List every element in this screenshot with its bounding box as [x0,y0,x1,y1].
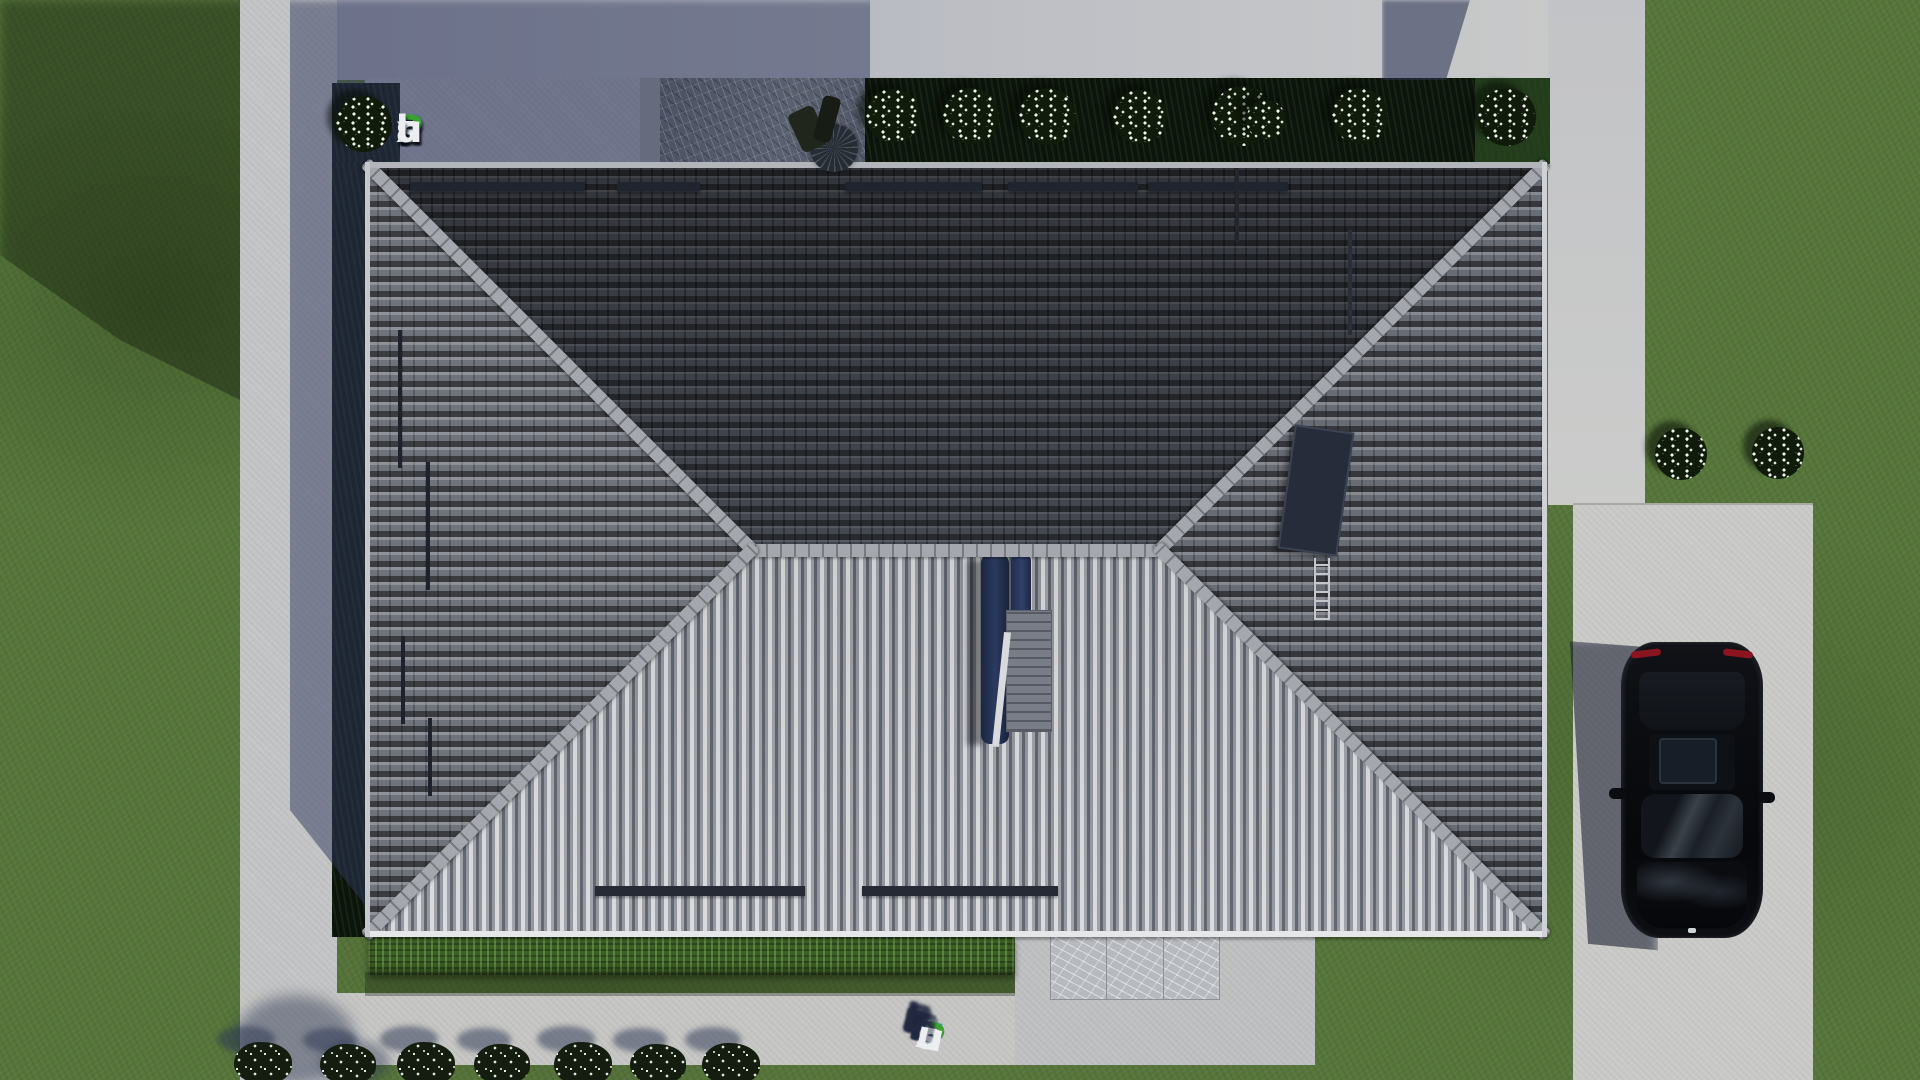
border-plant [630,1044,686,1080]
roof-vent-pipe [1235,164,1239,242]
left-border-bed [332,162,365,937]
car-mirror-right [1758,792,1775,803]
roof-guard-bar [1008,182,1138,191]
black-car [1621,642,1763,938]
marble-patio [1050,935,1220,1000]
flower-bush [1752,427,1804,479]
right-walkway [1548,0,1645,505]
roof-guard-bar [862,886,1058,896]
roof-hatch-box [1006,610,1052,732]
patio-seam [1106,936,1107,999]
roof-pipe [428,718,432,796]
hip-roof [365,162,1547,937]
flower-bush [1478,88,1536,146]
flower-bush [1246,100,1286,140]
flower-bush [336,96,392,152]
roof-guard-bar [617,182,700,191]
roof-pipe [398,330,402,468]
ridge-cap [752,544,1160,557]
car-hood [1637,862,1747,928]
flower-bush [1019,88,1076,145]
border-plant [702,1043,760,1080]
flower-bush [866,89,920,143]
car-mirror-left [1609,788,1626,799]
car-front-badge [1688,928,1696,933]
hedge-grass-strip [365,972,1015,996]
border-plant [397,1042,455,1080]
roof-guard-bar [845,182,982,191]
roof-ladder [1314,558,1330,620]
car-rear-window [1639,672,1745,730]
aerial-render-scene: FixPlans.ru FixPlans.ru FixPlans.ru [0,0,1920,1080]
flower-bush [1113,90,1167,144]
border-plant [474,1044,530,1080]
roof-guard-bar [410,182,585,191]
left-walkway [240,0,337,1080]
roof-pipe [426,462,430,590]
border-plant [320,1044,376,1080]
flower-bush [1655,428,1707,480]
patio-seam [1163,936,1164,999]
roof-pipe [401,636,405,724]
border-plant [554,1042,612,1080]
top-walkway [337,0,1550,80]
gutter-west [365,162,370,937]
gutter-east [1542,162,1547,937]
gutter-north [365,162,1547,168]
roof-guard-bar [595,886,805,896]
car-windshield [1641,794,1743,858]
patio-plant [788,92,856,174]
car-sunroof [1659,738,1717,784]
roof-guard-bar [1148,182,1288,191]
border-plant [234,1042,292,1080]
roof-pipe [1348,230,1352,335]
hedge-row [368,937,1015,975]
flower-bush [943,88,999,144]
flower-bush [1332,88,1388,144]
gutter-south [365,931,1547,937]
